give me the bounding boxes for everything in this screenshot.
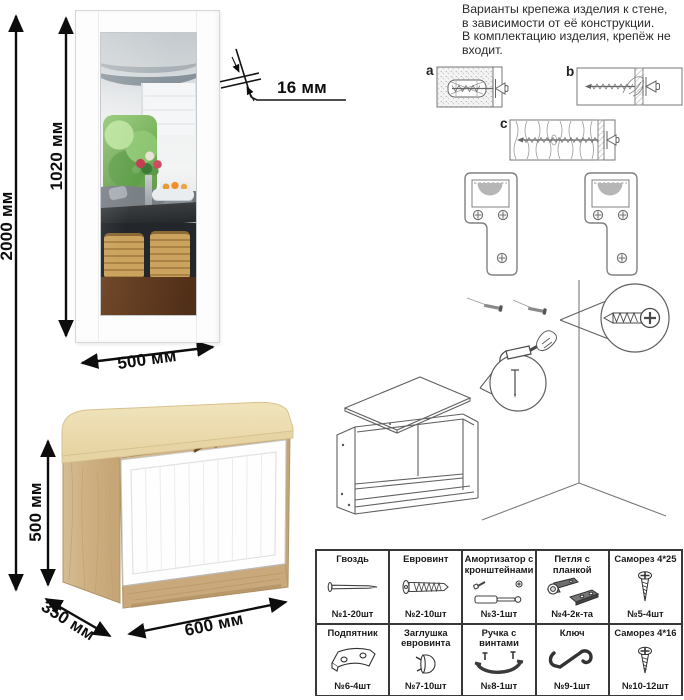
- part-cell: Амортизатор с кронштейнами №3-1шт: [462, 550, 535, 624]
- part-name: Евровинт: [403, 554, 448, 565]
- wall-bracket: [464, 172, 518, 276]
- wall-mirror: [75, 10, 220, 343]
- short-screw-icon: [617, 644, 673, 676]
- variant-a-diagram: [437, 67, 508, 107]
- part-name: Ключ: [560, 628, 585, 639]
- cushion-front-band: [62, 431, 293, 463]
- dim-mirror-height-label: 1020 мм: [47, 116, 67, 196]
- part-cell: Петля с планкой №4-2к-та: [536, 550, 609, 624]
- hammer-icon: [500, 341, 547, 362]
- euroscrew-icon: [398, 570, 454, 604]
- part-cell: Евровинт №2-10шт: [389, 550, 462, 624]
- shoe-bench: [55, 398, 300, 630]
- part-cell: Заглушка евровинта №7-10шт: [389, 624, 462, 696]
- variant-b-diagram: [577, 68, 682, 105]
- part-name: Ручка с винтами: [464, 628, 533, 649]
- dim-mirror-width-label: 500 мм: [106, 345, 188, 376]
- gas-lift-icon: [471, 577, 527, 607]
- part-qty: №10-12шт: [622, 681, 669, 692]
- long-screw-icon: [617, 570, 673, 604]
- cap-icon: [398, 650, 454, 680]
- note-line: входит.: [462, 44, 683, 58]
- footpad-icon: [325, 643, 381, 677]
- part-qty: №8-1шт: [481, 681, 517, 692]
- bench-left-side: [63, 446, 120, 603]
- screw-icon: [604, 309, 660, 328]
- keyhole-slot: [478, 183, 503, 196]
- door-handle: [195, 445, 216, 451]
- bracket-screws: [593, 210, 627, 262]
- furniture-spec-sheet: 2000 мм 1020 мм 500 мм 16 мм 500 мм 350 …: [0, 0, 684, 700]
- assembly-diagram: [320, 278, 684, 540]
- wall-mount-note: Варианты крепежа изделия к стене, в зави…: [462, 3, 683, 58]
- bench-front: [120, 434, 290, 608]
- cabinet-back-panel: [345, 377, 470, 433]
- part-cell: Саморез 4*25 №5-4шт: [609, 550, 682, 624]
- wall-bracket: [584, 172, 638, 276]
- part-name: Саморез 4*25: [614, 554, 676, 565]
- part-cell: Подпятник №6-4шт: [316, 624, 389, 696]
- dim-thickness-label: 16 мм: [262, 78, 342, 98]
- variant-c-diagram: [510, 120, 619, 160]
- bracket-screws: [473, 210, 507, 262]
- part-qty: №5-4шт: [627, 609, 663, 620]
- door-inner-frame: [131, 452, 276, 574]
- nail-icon: [511, 370, 519, 398]
- bench-body: [62, 402, 293, 608]
- part-qty: №4-2к-та: [551, 609, 593, 620]
- part-cell: Ручка с винтами №8-1шт: [462, 624, 535, 696]
- part-name: Заглушка евровинта: [391, 628, 460, 649]
- bench-plinth: [123, 564, 288, 608]
- part-name: Петля с планкой: [538, 554, 607, 575]
- keyhole-slot: [598, 183, 623, 196]
- nail-icon: [325, 570, 381, 604]
- wall-fastening-diagrams: [425, 60, 684, 165]
- bench-base-shadow: [131, 584, 281, 608]
- hinge-icon: [544, 575, 600, 609]
- variant-b-label: b: [566, 64, 574, 79]
- variant-a-label: a: [426, 63, 434, 78]
- part-name: Саморез 4*16: [614, 628, 676, 639]
- flying-screws: [467, 298, 547, 315]
- part-qty: №2-10шт: [405, 609, 447, 620]
- part-qty: №7-10шт: [405, 681, 447, 692]
- handle-icon: [471, 649, 527, 681]
- part-qty: №6-4шт: [334, 681, 370, 692]
- dim-bench-depth-label: 350 мм: [29, 591, 107, 650]
- hammer-detail-bubble: [480, 331, 557, 411]
- part-qty: №1-20шт: [332, 609, 374, 620]
- note-line: Варианты крепежа изделия к стене,: [462, 3, 683, 17]
- part-cell: Саморез 4*16 №10-12шт: [609, 624, 682, 696]
- glass-sheen: [101, 33, 196, 315]
- dim-total-height-label: 2000 мм: [0, 186, 17, 266]
- note-line: В комплектацию изделия, крепёж не: [462, 30, 683, 44]
- part-cell: Ключ №9-1шт: [536, 624, 609, 696]
- bench-cushion: [62, 402, 293, 456]
- part-name: Гвоздь: [336, 554, 369, 565]
- key-icon: [544, 644, 600, 676]
- hardware-table: Гвоздь №1-20шт Евровинт №2-10шт Амортиза…: [315, 549, 683, 696]
- frame-stile: [98, 11, 99, 342]
- part-qty: №3-1шт: [481, 609, 517, 620]
- variant-c-label: c: [500, 116, 508, 131]
- wall-corner: [482, 280, 666, 520]
- dim-bench-height-label: 500 мм: [26, 472, 46, 552]
- part-name: Подпятник: [328, 628, 378, 639]
- dim-bench-width-label: 600 мм: [173, 607, 255, 643]
- part-name: Амортизатор с кронштейнами: [464, 554, 533, 575]
- hand-icon: [537, 331, 557, 351]
- door-grooves: [146, 453, 262, 571]
- cabinet-box: [337, 414, 478, 514]
- part-qty: №9-1шт: [554, 681, 590, 692]
- note-line: в зависимости от её конструкции.: [462, 17, 683, 31]
- bench-door: [121, 440, 286, 586]
- part-cell: Гвоздь №1-20шт: [316, 550, 389, 624]
- mirror-glass: [100, 32, 197, 316]
- screw-detail-bubble: [560, 284, 669, 352]
